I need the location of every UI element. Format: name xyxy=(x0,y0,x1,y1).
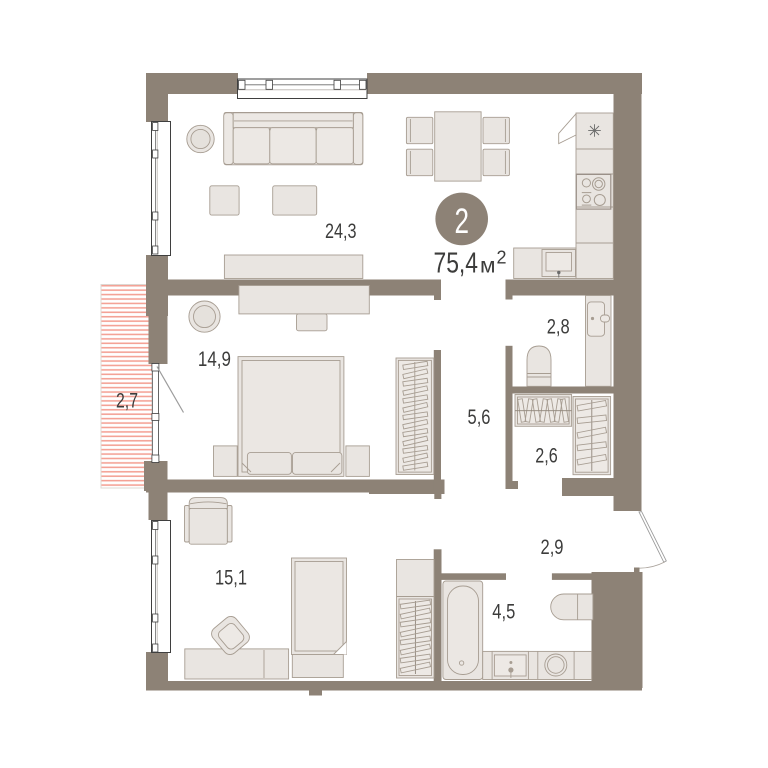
svg-text:2: 2 xyxy=(497,248,507,268)
svg-text:м: м xyxy=(480,255,496,278)
svg-text:2,9: 2,9 xyxy=(541,536,564,559)
svg-text:5,6: 5,6 xyxy=(468,406,491,429)
svg-text:4,5: 4,5 xyxy=(492,601,515,624)
svg-text:2: 2 xyxy=(454,201,469,241)
svg-text:24,3: 24,3 xyxy=(325,220,357,243)
svg-text:2,7: 2,7 xyxy=(116,390,138,413)
svg-text:2,8: 2,8 xyxy=(547,316,570,339)
svg-text:75,4: 75,4 xyxy=(434,248,479,280)
svg-text:15,1: 15,1 xyxy=(215,567,247,590)
svg-text:2,6: 2,6 xyxy=(535,445,558,468)
svg-text:14,9: 14,9 xyxy=(198,348,231,371)
